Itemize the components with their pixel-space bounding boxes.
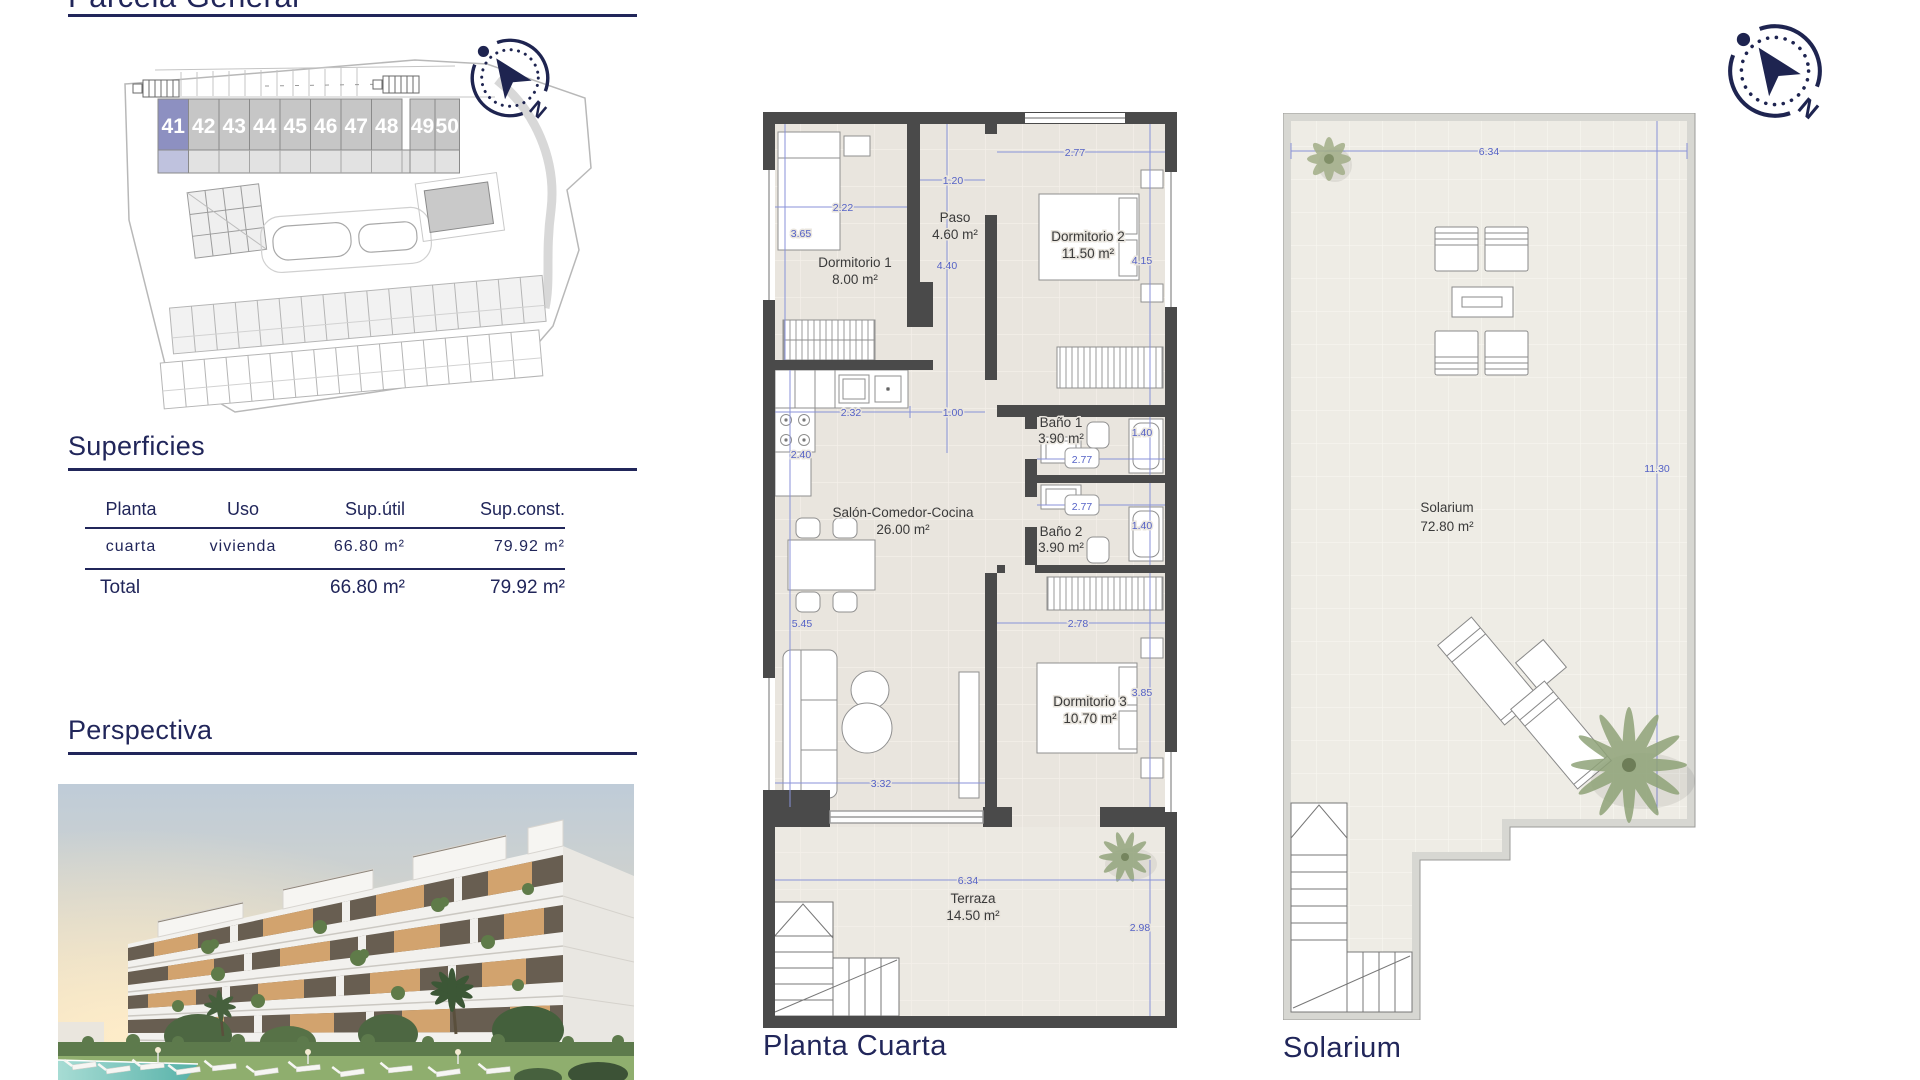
svg-text:Terraza: Terraza (950, 891, 996, 906)
svg-text:49: 49 (411, 115, 434, 138)
svg-text:50: 50 (436, 115, 459, 138)
svg-text:2.32: 2.32 (841, 407, 862, 419)
svg-text:14.50 m²: 14.50 m² (946, 908, 1000, 923)
total-sup-util: 66.80 m² (285, 577, 405, 599)
wardrobe-icon (1047, 577, 1163, 610)
svg-text:72.80 m²: 72.80 m² (1420, 519, 1474, 534)
svg-text:3.65: 3.65 (791, 228, 812, 240)
svg-text:41: 41 (162, 115, 186, 138)
total-label: Total (100, 577, 140, 599)
col-header-uso: Uso (196, 499, 290, 520)
svg-text:45: 45 (284, 115, 308, 138)
svg-text:3.85: 3.85 (1132, 687, 1153, 699)
pouf-icon (842, 703, 892, 753)
svg-text:11.50 m²: 11.50 m² (1062, 246, 1115, 261)
wardrobe-icon (783, 320, 875, 360)
svg-text:1.20: 1.20 (943, 175, 964, 187)
svg-text:1.00: 1.00 (943, 407, 964, 419)
table-rule (85, 527, 565, 529)
svg-text:2.77: 2.77 (1072, 501, 1093, 513)
svg-text:43: 43 (223, 115, 246, 138)
dimension-label: 11.30 (1644, 463, 1670, 475)
north-letter: N (1792, 93, 1823, 125)
total-sup-const: 79.92 m² (445, 577, 565, 599)
superficies-rule (68, 468, 637, 471)
sofa-icon (783, 650, 837, 798)
svg-text:3.90 m²: 3.90 m² (1038, 431, 1084, 446)
svg-text:Dormitorio 1: Dormitorio 1 (818, 255, 892, 270)
svg-text:6.34: 6.34 (958, 875, 979, 887)
svg-text:2.77: 2.77 (1072, 454, 1093, 466)
room-label-bano-2: Baño 2 3.90 m² (1038, 524, 1084, 555)
floor-plan-label: Planta Cuarta (763, 1030, 947, 1063)
page-title: Parcela General (68, 0, 300, 14)
svg-text:2.40: 2.40 (791, 449, 812, 461)
cell-sup-const: 79.92 m² (445, 538, 565, 556)
svg-text:2.78: 2.78 (1068, 618, 1089, 630)
svg-text:Paso: Paso (940, 210, 971, 225)
dimension-label: 6.34 (1479, 146, 1500, 158)
wardrobe-icon (1057, 347, 1163, 388)
svg-text:Solarium: Solarium (1420, 500, 1473, 515)
svg-text:Baño 2: Baño 2 (1040, 524, 1083, 539)
north-compass-icon: N (462, 30, 558, 126)
svg-text:44: 44 (253, 115, 277, 138)
svg-text:1.40: 1.40 (1132, 427, 1153, 439)
svg-text:3.90 m²: 3.90 m² (1038, 540, 1084, 555)
north-compass-icon: N (1718, 14, 1832, 128)
col-header-planta: Planta (85, 499, 177, 520)
svg-text:Dormitorio 2: Dormitorio 2 (1051, 229, 1125, 244)
title-rule (68, 14, 637, 17)
svg-text:47: 47 (345, 115, 368, 138)
building-render (58, 784, 634, 1080)
svg-text:2.98: 2.98 (1130, 922, 1151, 934)
svg-text:4.15: 4.15 (1132, 255, 1153, 267)
svg-text:Dormitorio 3: Dormitorio 3 (1053, 694, 1127, 709)
solarium-plan: 6.34 11.30 Solarium 72.80 m² (1283, 113, 1696, 1020)
kitchen-counter-icon (775, 370, 908, 408)
svg-text:Salón-Comedor-Cocina: Salón-Comedor-Cocina (832, 505, 974, 520)
svg-text:46: 46 (314, 115, 337, 138)
cell-uso: vivienda (196, 538, 290, 556)
tv-sideboard-icon (959, 672, 979, 798)
apartment-floor-plan: 2.22 3.65 1.20 4.40 2.77 4.15 2.32 1.00 … (763, 112, 1177, 1028)
col-header-sup-const: Sup.const. (445, 499, 565, 520)
col-header-sup-util: Sup.útil (285, 499, 405, 520)
cell-planta: cuarta (85, 538, 177, 556)
room-label-bano-1: Baño 1 3.90 m² (1038, 415, 1084, 446)
svg-text:42: 42 (192, 115, 215, 138)
table-rule-total (85, 568, 565, 570)
perspectiva-rule (68, 752, 637, 755)
svg-text:2.77: 2.77 (1065, 147, 1086, 159)
svg-text:4.60 m²: 4.60 m² (932, 227, 978, 242)
svg-text:10.70 m²: 10.70 m² (1063, 711, 1117, 726)
superficies-heading: Superficies (68, 431, 205, 462)
perspectiva-heading: Perspectiva (68, 715, 212, 746)
svg-text:8.00 m²: 8.00 m² (832, 272, 878, 287)
solarium-label: Solarium (1283, 1032, 1401, 1065)
svg-text:5.45: 5.45 (792, 618, 813, 630)
svg-text:3.32: 3.32 (871, 778, 892, 790)
svg-text:Baño 1: Baño 1 (1040, 415, 1083, 430)
svg-text:1.40: 1.40 (1132, 520, 1153, 532)
lower-building-left (187, 184, 267, 258)
svg-text:2.22: 2.22 (833, 202, 854, 214)
cell-sup-util: 66.80 m² (285, 538, 405, 556)
north-letter: N (525, 96, 551, 123)
svg-text:26.00 m²: 26.00 m² (876, 522, 930, 537)
svg-text:48: 48 (375, 115, 399, 138)
svg-text:4.40: 4.40 (937, 260, 958, 272)
